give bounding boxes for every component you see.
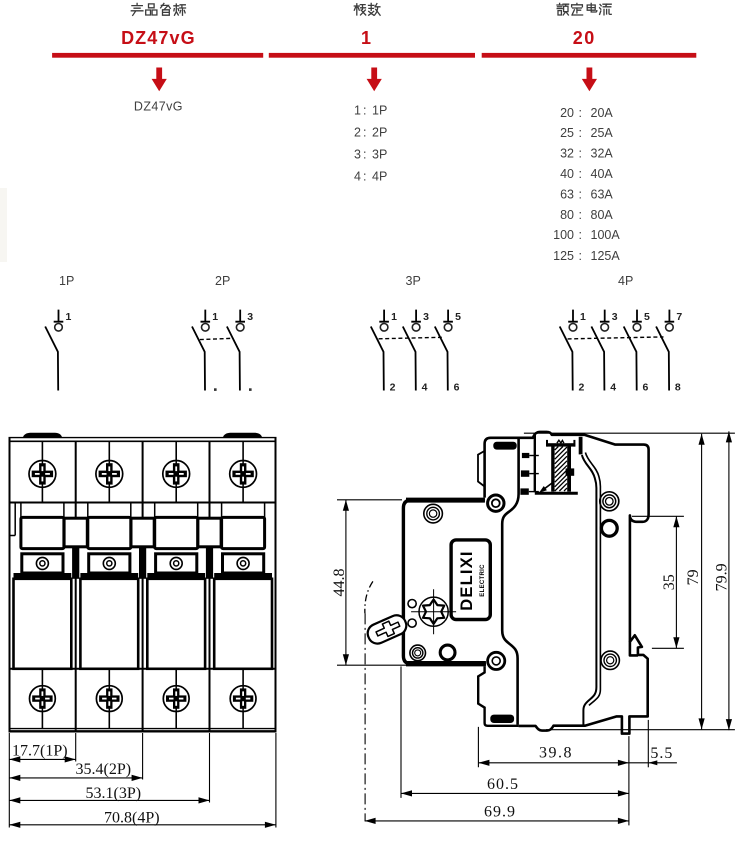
svg-text:4: 4 [422, 381, 428, 393]
svg-text:8: 8 [675, 381, 681, 393]
svg-text:69.9: 69.9 [484, 803, 516, 820]
svg-text:39.8: 39.8 [539, 744, 573, 761]
svg-text:100A: 100A [591, 228, 621, 242]
svg-text:35: 35 [661, 574, 678, 590]
svg-text:7: 7 [676, 311, 682, 323]
svg-text:6: 6 [643, 381, 649, 393]
svg-text:2P: 2P [215, 274, 230, 288]
svg-text:17.7(1P): 17.7(1P) [12, 742, 68, 759]
svg-text:79: 79 [685, 569, 702, 585]
svg-text:63: 63 [560, 187, 574, 201]
svg-text:125: 125 [553, 249, 574, 263]
svg-text:4: 4 [354, 170, 361, 184]
svg-text:60.5: 60.5 [487, 776, 519, 793]
svg-text:20: 20 [560, 106, 574, 120]
svg-text:40A: 40A [591, 167, 614, 181]
svg-text::: : [363, 148, 366, 162]
svg-text:3: 3 [247, 311, 253, 323]
svg-text::: : [579, 147, 582, 161]
svg-text:5: 5 [644, 311, 650, 323]
svg-text:DZ47vG: DZ47vG [134, 99, 183, 113]
svg-text:4P: 4P [618, 274, 633, 288]
svg-text::: : [579, 187, 582, 201]
svg-text::: : [579, 167, 582, 181]
svg-text:DZ47vG: DZ47vG [121, 28, 196, 48]
svg-text:44.8: 44.8 [331, 569, 348, 597]
svg-text::: : [579, 249, 582, 263]
svg-text:1: 1 [361, 28, 371, 48]
svg-text:32A: 32A [591, 147, 614, 161]
svg-text:35.4(2P): 35.4(2P) [76, 761, 132, 778]
svg-text:125A: 125A [591, 249, 621, 263]
svg-text:3: 3 [612, 311, 618, 323]
svg-text:1: 1 [354, 104, 361, 118]
svg-text:2: 2 [354, 126, 361, 140]
svg-text:3: 3 [354, 148, 361, 162]
svg-text:63A: 63A [591, 187, 614, 201]
svg-text:1P: 1P [372, 104, 387, 118]
svg-text:1: 1 [580, 311, 586, 323]
svg-text:80: 80 [560, 208, 574, 222]
svg-text:DELIXI: DELIXI [458, 550, 476, 610]
svg-text:25: 25 [560, 126, 574, 140]
svg-text::: : [579, 228, 582, 242]
svg-text:4: 4 [610, 381, 616, 393]
svg-text::: : [579, 106, 582, 120]
svg-text::: : [363, 170, 366, 184]
svg-text:2: 2 [390, 381, 396, 393]
svg-text::: : [579, 208, 582, 222]
svg-text:79.9: 79.9 [713, 563, 730, 591]
svg-text:5.5: 5.5 [650, 745, 673, 762]
svg-text:25A: 25A [591, 126, 614, 140]
svg-text:1: 1 [212, 311, 218, 323]
svg-text:3: 3 [423, 311, 429, 323]
svg-text:40: 40 [560, 167, 574, 181]
svg-text:20A: 20A [591, 106, 614, 120]
svg-text:6: 6 [454, 381, 460, 393]
svg-text:1: 1 [66, 311, 72, 323]
svg-text:ELECTRIC: ELECTRIC [480, 564, 486, 597]
svg-text:3P: 3P [372, 148, 387, 162]
svg-text:53.1(3P): 53.1(3P) [86, 785, 142, 802]
svg-text:3P: 3P [406, 274, 421, 288]
svg-text:100: 100 [553, 228, 574, 242]
svg-text::: : [579, 126, 582, 140]
svg-text::: : [363, 126, 366, 140]
svg-text:2: 2 [579, 381, 585, 393]
svg-text:70.8(4P): 70.8(4P) [104, 809, 160, 826]
svg-text:80A: 80A [591, 208, 614, 222]
svg-text:20: 20 [573, 28, 596, 48]
svg-text:1P: 1P [59, 274, 74, 288]
svg-text:32: 32 [560, 147, 574, 161]
svg-text:1: 1 [391, 311, 397, 323]
svg-text::: : [363, 104, 366, 118]
svg-text:4P: 4P [372, 170, 387, 184]
svg-text:5: 5 [455, 311, 461, 323]
svg-text:2P: 2P [372, 126, 387, 140]
